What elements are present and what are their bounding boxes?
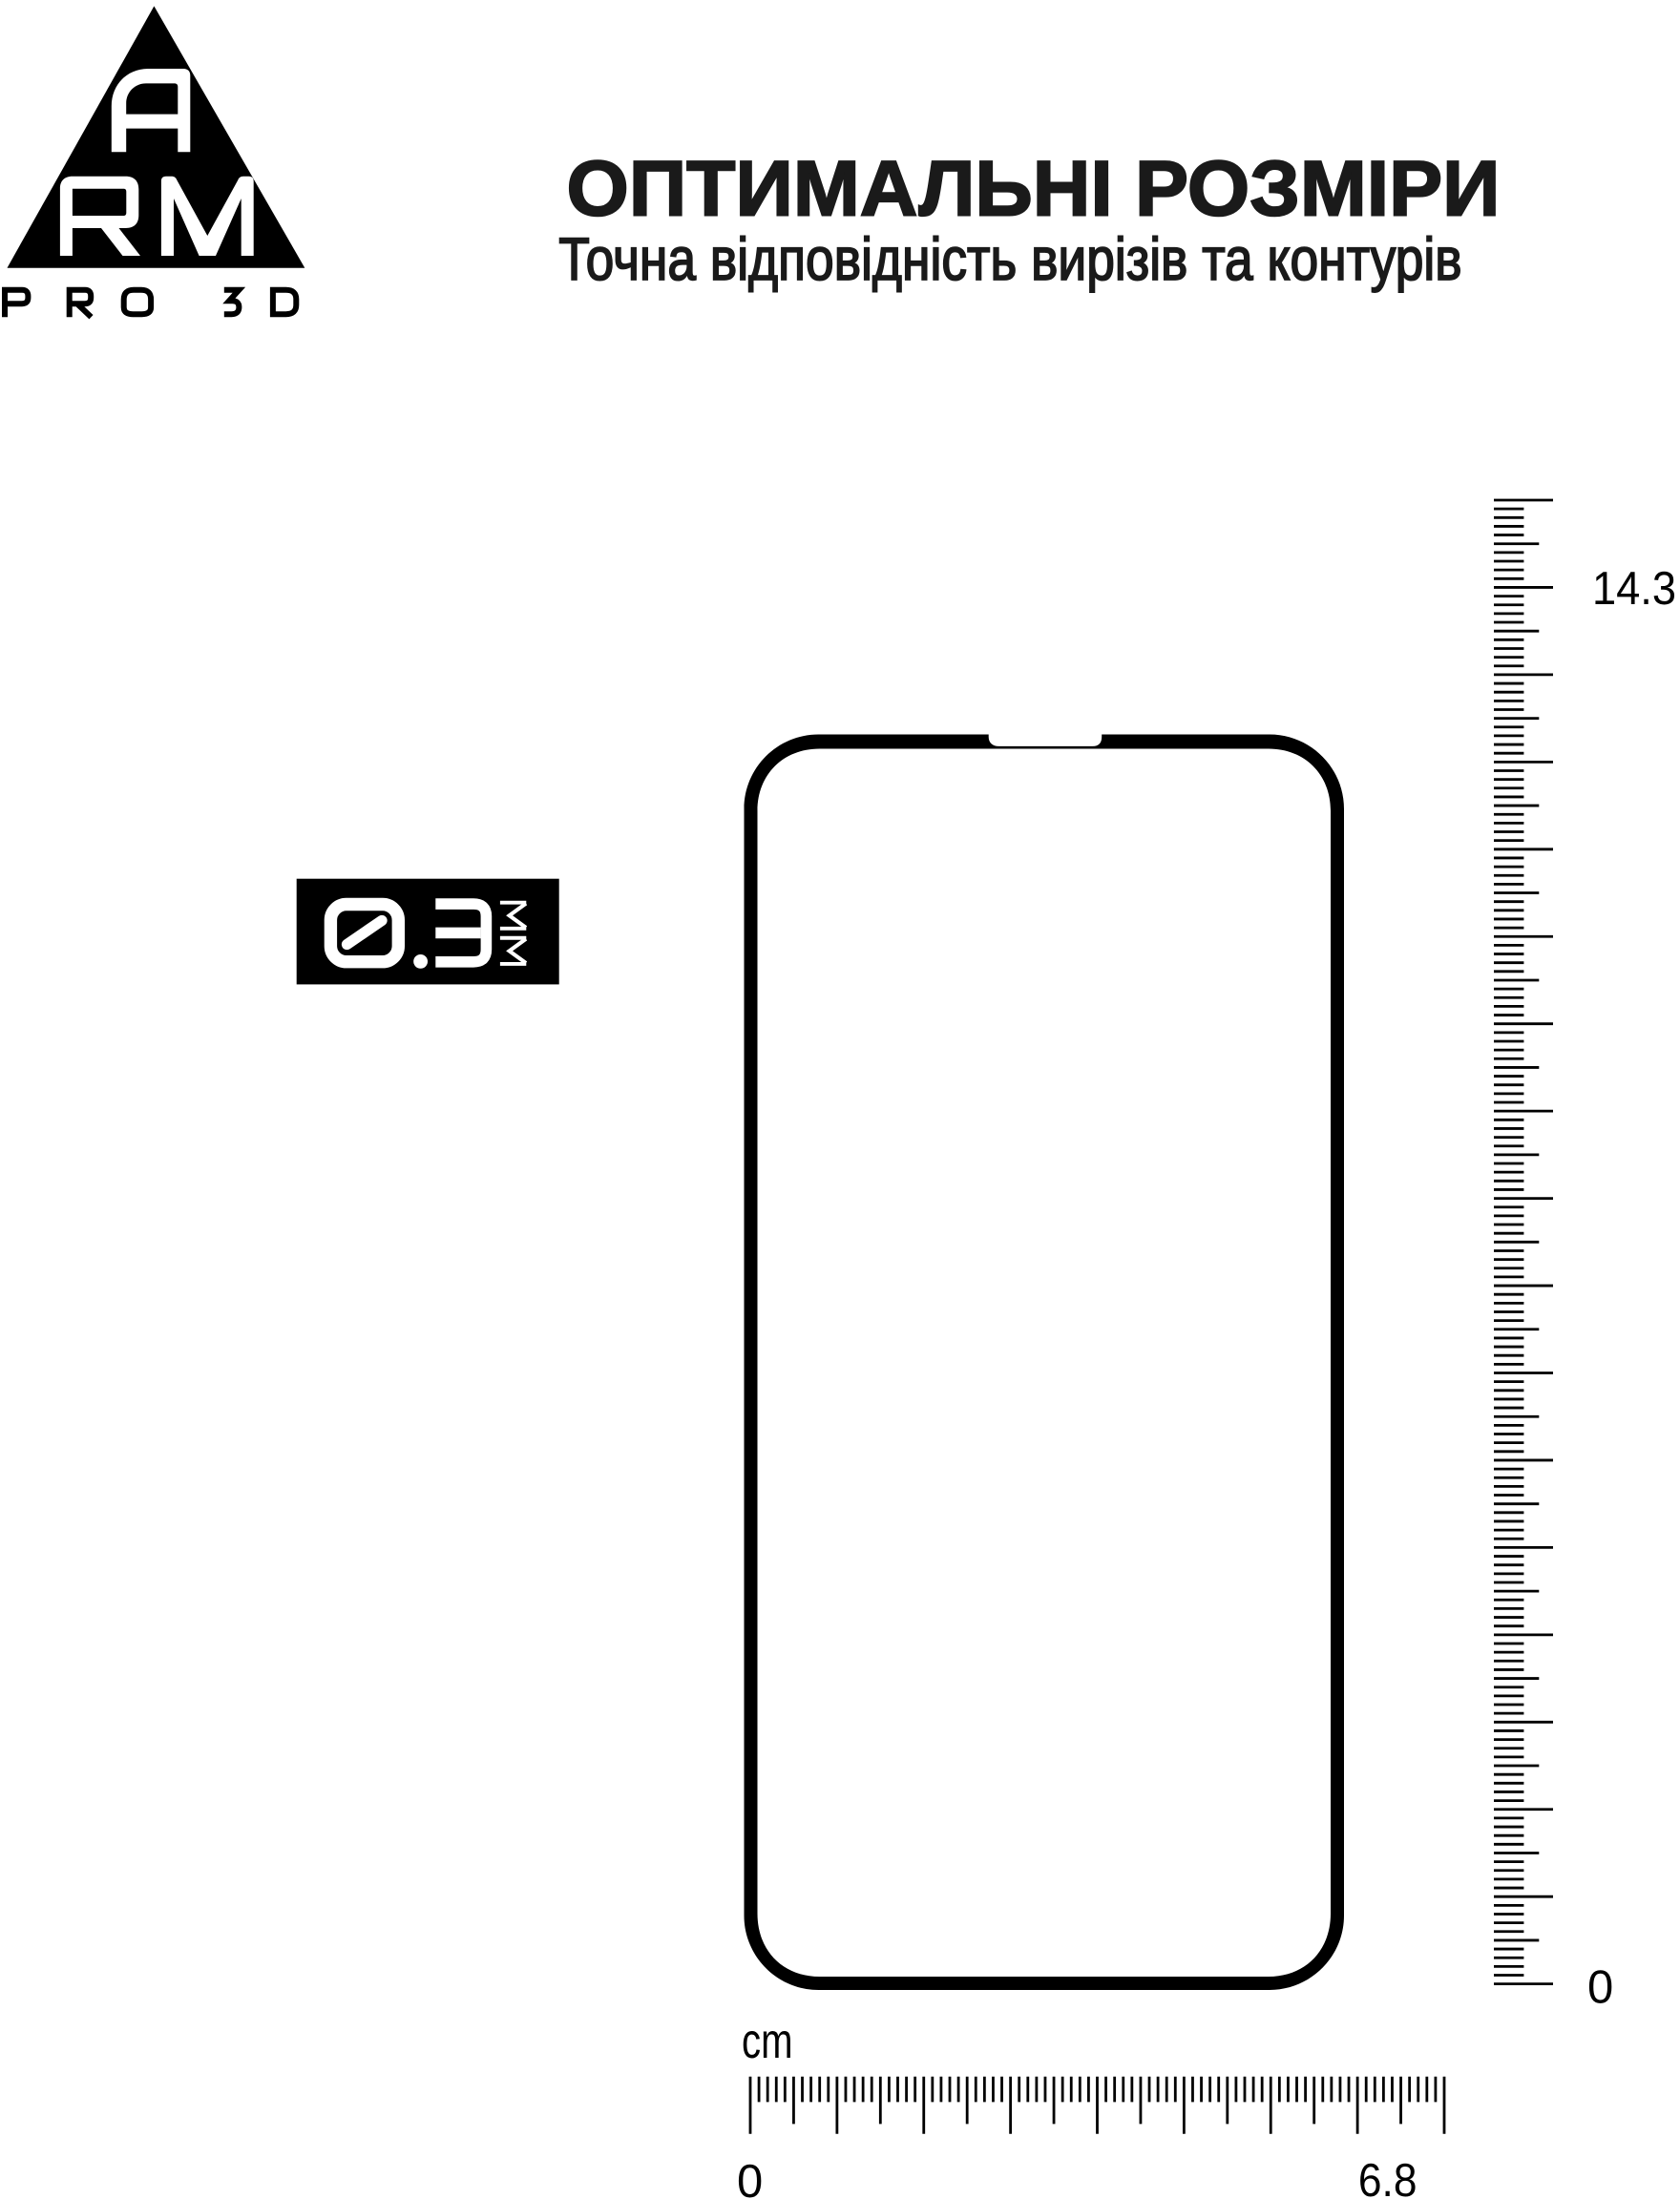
svg-text:6.8: 6.8: [1358, 2155, 1417, 2199]
svg-text:0: 0: [1587, 1962, 1613, 2014]
svg-text:cm: cm: [742, 2014, 793, 2069]
svg-text:0: 0: [737, 2156, 763, 2199]
svg-text:Точна відповідність вирізів та: Точна відповідність вирізів та контурів: [558, 226, 1461, 293]
svg-text:ОПТИМАЛЬНІ РОЗМІРИ: ОПТИМАЛЬНІ РОЗМІРИ: [567, 146, 1501, 233]
svg-text:14.3: 14.3: [1592, 563, 1676, 615]
